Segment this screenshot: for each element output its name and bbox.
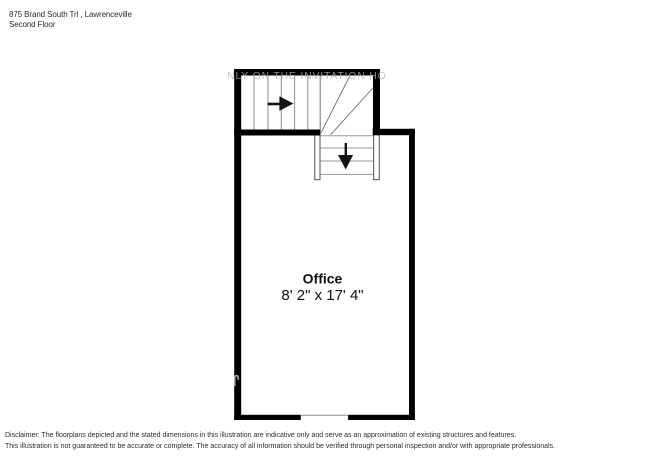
svg-text:8' 2" x 17' 4": 8' 2" x 17' 4" <box>281 287 363 304</box>
svg-text:Office: Office <box>303 271 343 287</box>
svg-text:NLY ON THE INVITATION HO: NLY ON THE INVITATION HO <box>227 71 386 82</box>
